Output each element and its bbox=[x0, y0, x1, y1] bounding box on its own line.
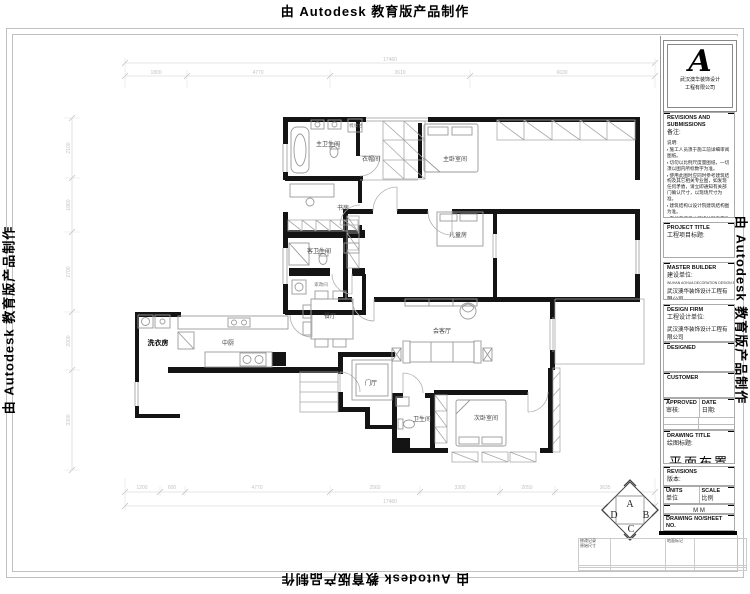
note-item: 切勿以比例尺度量图纸，一切须以图内所标数字为准。 bbox=[667, 160, 731, 172]
room-label: 餐厅 bbox=[324, 312, 336, 320]
footer-cell-r3c3 bbox=[666, 568, 695, 571]
section-designed: DESIGNED bbox=[663, 342, 735, 372]
design-firm-cn: 工程设计单位: bbox=[667, 314, 731, 322]
section-drawing-title: DRAWING TITLE 绘图标题: 平面布置图 bbox=[663, 430, 735, 464]
notes-title: 说明: bbox=[667, 140, 731, 146]
dimension-label: 3300 bbox=[66, 414, 72, 425]
room-label: 门厅 bbox=[365, 379, 377, 387]
room-label: 会客厅 bbox=[433, 327, 451, 335]
drawing-title-label: DRAWING TITLE bbox=[667, 433, 731, 440]
title-block-bottom-bar bbox=[659, 531, 737, 535]
note-item: 建筑结构以设计院建筑结构图为准。 bbox=[667, 203, 731, 215]
drawing-sheet: 由 Autodesk 教育版产品制作 由 Autodesk 教育版产品制作 由 … bbox=[0, 0, 750, 594]
dimension-label: 4770 bbox=[252, 70, 263, 76]
design-firm-label: DESIGN FIRM bbox=[667, 307, 731, 314]
footer-cell-r1c3: 地面标记 bbox=[666, 539, 695, 566]
dimension-label: 17460 bbox=[383, 57, 397, 63]
room-label: 中厨 bbox=[222, 339, 234, 347]
dimension-label: 4770 bbox=[251, 485, 262, 491]
footer-cell-r3c2 bbox=[611, 568, 666, 571]
section-drawing-no: DRAWING NO/SHEET NO. 图别: 图号: bbox=[663, 514, 735, 531]
note-item: 使用此图时应同时参考建筑结构及其它相关专业图，如发现任何矛盾，请立即通知有关部门… bbox=[667, 173, 731, 203]
room-label: 主卫生间 bbox=[316, 140, 340, 148]
washer-icon-utility bbox=[292, 280, 306, 294]
bed-icon-kids bbox=[437, 212, 483, 246]
dimension-label: 3610 bbox=[394, 70, 405, 76]
room-label: 衣帽间 bbox=[362, 155, 380, 163]
watermark-bottom: 由 Autodesk 教育版产品制作 bbox=[281, 571, 469, 590]
customer-label: CUSTOMER bbox=[667, 375, 731, 382]
footer-cell-r1c1: 修改记录 原始尺寸 bbox=[579, 539, 611, 566]
units-value: M M bbox=[667, 507, 731, 514]
master-builder-cn: 建设单位: bbox=[667, 272, 731, 280]
section-design-firm: DESIGN FIRM 工程设计单位: 武汉澳华装饰设计工程有限公司 bbox=[663, 304, 735, 342]
dimension-label: 3300 bbox=[454, 485, 465, 491]
units-cn: 单位 bbox=[666, 495, 697, 503]
sofa-icon bbox=[392, 341, 492, 363]
section-master-builder: MASTER BUILDER 建设单位: WUHAN AOHUA DECORAT… bbox=[663, 262, 735, 300]
footer-cell-r3c4 bbox=[695, 568, 747, 571]
dimension-label: 1860 bbox=[66, 199, 72, 210]
room-label: 次卧室间 bbox=[474, 414, 498, 422]
window-symbols bbox=[134, 116, 641, 406]
desk-icon-study bbox=[290, 184, 334, 206]
dimension-label: 2100 bbox=[66, 142, 72, 153]
door-arcs bbox=[290, 156, 548, 412]
date-cn: 日期: bbox=[702, 407, 732, 415]
toilet-icon-hall-bath bbox=[396, 397, 415, 429]
master-builder-en-line: WUHAN AOHUA DECORATION DESIGN ENGINEERIN… bbox=[667, 281, 731, 285]
note-item: 施工人员须于施工前详细审阅图纸。 bbox=[667, 147, 731, 159]
drawing-title-cn: 绘图标题: bbox=[667, 440, 731, 448]
section-customer: CUSTOMER bbox=[663, 372, 735, 398]
footer-cell-r1c4 bbox=[695, 539, 747, 566]
dimension-label: 6630 bbox=[556, 70, 567, 76]
footer-revision-table: 修改记录 原始尺寸 地面标记 bbox=[578, 538, 747, 571]
bathtub-icon bbox=[291, 127, 309, 173]
room-label: 客卫生间 bbox=[307, 247, 331, 255]
notes-list: 施工人员须于施工前详细审阅图纸。切勿以比例尺度量图纸，一切须以图内所标数字为准。… bbox=[667, 147, 731, 218]
section-approved-date: APPROVED 审核: DATE 日期: bbox=[663, 398, 735, 430]
revisions-header: REVISIONS AND SUBMISSIONS bbox=[667, 115, 731, 129]
watermark-top: 由 Autodesk 教育版产品制作 bbox=[281, 1, 469, 20]
company-logo-box: A 武汉澳华装饰设计 工程有限公司 bbox=[663, 40, 737, 112]
section-units-scale: UNITS 单位 SCALE 比例 bbox=[663, 486, 735, 504]
section-units-value: M M bbox=[663, 504, 735, 514]
dimension-labels: 1746018004770361066301200600477025603300… bbox=[66, 57, 611, 505]
design-firm-company: 武汉澳华装饰设计工程有限公司 bbox=[667, 325, 731, 341]
watermark-left: 由 Autodesk 教育版产品制作 bbox=[0, 226, 18, 414]
logo-company-line1: 武汉澳华装饰设计 bbox=[668, 77, 732, 85]
room-label: 洗衣房 bbox=[148, 338, 169, 347]
drawing-name: 平面布置图 bbox=[667, 452, 731, 464]
drawing-no-label: DRAWING NO/SHEET NO. bbox=[666, 516, 732, 530]
entry-mat-icon bbox=[352, 360, 392, 400]
watermark-right: 由 Autodesk 教育版产品制作 bbox=[733, 216, 750, 404]
revisions-header-cn: 备注: bbox=[667, 129, 731, 137]
logo-company-line2: 工程有限公司 bbox=[668, 85, 732, 93]
project-title-label: PROJECT TITLE bbox=[667, 225, 731, 232]
compass-letter-c: C bbox=[628, 524, 635, 535]
section-project-title: PROJECT TITLE 工程项目标题: bbox=[663, 222, 735, 258]
company-logo-icon: A bbox=[668, 47, 732, 77]
room-label: 卫生间 bbox=[413, 415, 431, 423]
room-label: 家政间 bbox=[314, 281, 328, 288]
compass-letter-d: D bbox=[610, 510, 617, 521]
compass-letter-a: A bbox=[626, 499, 634, 510]
walls bbox=[135, 117, 640, 453]
section-revisions-submissions: REVISIONS AND SUBMISSIONS 备注: 说明: 施工人员须于… bbox=[663, 112, 735, 218]
dimension-label: 1800 bbox=[150, 70, 161, 76]
dimension-label: 600 bbox=[168, 485, 177, 491]
dimension-label: 3635 bbox=[599, 485, 610, 491]
title-block: A 武汉澳华装饰设计 工程有限公司 REVISIONS AND SUBMISSI… bbox=[660, 36, 739, 535]
dimension-label: 2560 bbox=[369, 485, 380, 491]
master-builder-label: MASTER BUILDER bbox=[667, 265, 731, 272]
scale-label: SCALE bbox=[702, 488, 733, 495]
master-builder-company: 武汉澳华装饰设计工程有限公司 bbox=[667, 287, 731, 300]
date-label: DATE bbox=[702, 400, 732, 407]
approved-label: APPROVED bbox=[666, 400, 697, 407]
bed-icon-master bbox=[424, 124, 478, 172]
footer-cell-r1c2 bbox=[611, 539, 666, 566]
revisions2-cn: 版本: bbox=[667, 476, 731, 484]
units-label: UNITS bbox=[666, 488, 697, 495]
revisions2-label: REVISIONS bbox=[667, 469, 731, 476]
floor-plan-canvas: 主卫生间梳妆台衣帽间主卧室间书房客卫生间家政间儿童房餐厅中厨洗衣房会客厅门厅卫生… bbox=[0, 0, 750, 594]
dimension-label: 2000 bbox=[66, 335, 72, 346]
plant-icon bbox=[460, 303, 476, 319]
bed-icon-second bbox=[456, 400, 506, 446]
dimension-label: 1200 bbox=[136, 485, 147, 491]
approved-cn: 审核: bbox=[666, 407, 697, 415]
compass-letter-b: B bbox=[643, 510, 650, 521]
section-revisions2: REVISIONS 版本: bbox=[663, 466, 735, 486]
room-label: 主卧室间 bbox=[443, 155, 467, 163]
room-label: 梳妆台 bbox=[349, 122, 363, 129]
dimension-label: 17460 bbox=[383, 499, 397, 505]
dimension-label: 2700 bbox=[66, 266, 72, 277]
scale-cn: 比例 bbox=[702, 495, 733, 503]
designed-label: DESIGNED bbox=[667, 345, 731, 352]
note-item: 未加盖澳华公司设计图章不准在施工中使用。 bbox=[667, 216, 731, 218]
room-label: 书房 bbox=[337, 204, 349, 212]
footer-cell-r3c1 bbox=[579, 568, 611, 571]
dimension-label: 2050 bbox=[521, 485, 532, 491]
room-label: 儿童房 bbox=[449, 231, 467, 239]
project-title-cn: 工程项目标题: bbox=[667, 232, 731, 240]
